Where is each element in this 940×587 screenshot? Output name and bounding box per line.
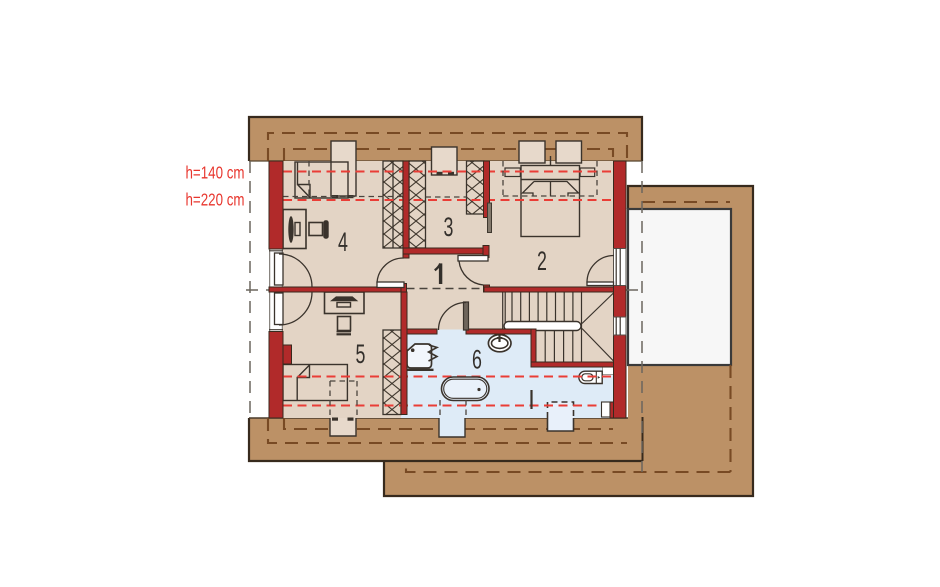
svg-text:2: 2	[537, 245, 547, 276]
svg-text:6: 6	[472, 344, 482, 375]
svg-text:3: 3	[444, 211, 454, 242]
svg-text:4: 4	[338, 226, 348, 257]
svg-text:h=220 cm: h=220 cm	[186, 190, 245, 210]
svg-text:h=140 cm: h=140 cm	[186, 163, 245, 183]
svg-text:5: 5	[356, 338, 366, 369]
